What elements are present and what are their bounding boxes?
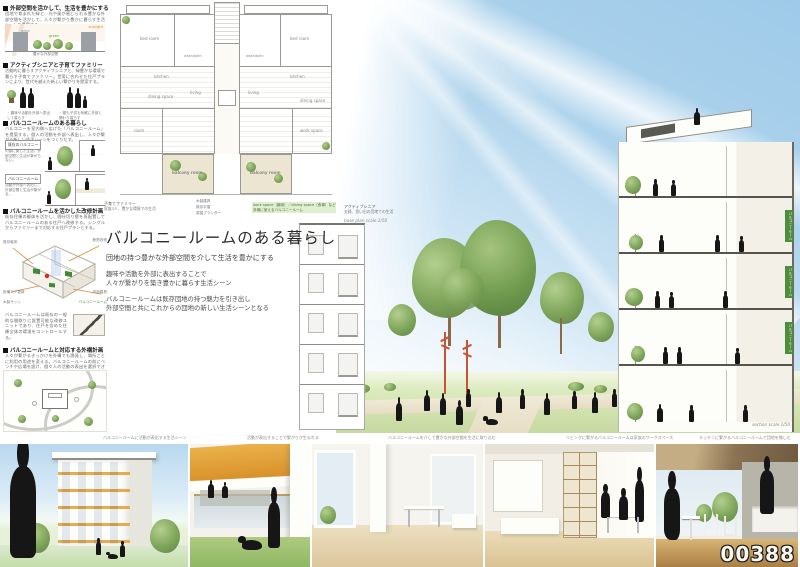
tree-blob	[55, 179, 71, 199]
plant-pot	[9, 98, 14, 103]
axon-label: 既存躯体	[3, 240, 17, 245]
person-silhouette	[657, 408, 663, 422]
table-leg	[408, 509, 410, 527]
person-silhouette	[635, 480, 644, 522]
room-label: living	[248, 90, 259, 95]
photo-caption: バルコニールームを介して豊かな外部空間を生活に取り込む	[388, 435, 496, 441]
person-silhouette	[120, 545, 125, 557]
room-label: dining space	[300, 98, 325, 103]
left-text-column: 外部空間を活かして、生活を豊かにする 団地で育まれた緑と、光や風が感じられる豊か…	[3, 0, 107, 433]
person-silhouette	[760, 470, 774, 514]
person-silhouette	[612, 393, 617, 407]
section-sketch	[75, 174, 105, 205]
wall	[292, 108, 293, 154]
after-note: 活動が外部へ表出し、外部空間と生活が繋がる。	[5, 183, 41, 197]
top-balcony	[126, 5, 210, 14]
tree-trunk	[560, 318, 562, 354]
photo-caption-row: バルコニールームに活動が表出する生活シーン 活動が表出することで繋がりが生まれる…	[0, 433, 800, 444]
room-label: bed room	[140, 36, 159, 41]
axonometric-diagram: 既存躯体 断熱改修 設備コア更新 内部建具 木製サッシ バルコニールーム	[3, 234, 107, 308]
table-leg	[438, 509, 440, 527]
section-scale-label: section scale 1/50	[752, 422, 790, 427]
photo-caption: 活動が表出することで繋がりが生まれる	[247, 435, 319, 441]
foreground-person-silhouette	[10, 466, 36, 558]
person-silhouette	[85, 181, 89, 190]
plan-plant	[322, 142, 330, 150]
tree-blob	[88, 381, 96, 389]
person-silhouette	[689, 409, 694, 422]
section2-body: 活動的に暮らすアクティブシニアと、緑豊かな環境で暮らす子育てファミリー。世帯に合…	[5, 68, 105, 85]
person-silhouette	[715, 239, 720, 252]
paragraph1-line1: 趣味や活動を外部に表出することで	[106, 271, 207, 278]
person-silhouette	[20, 92, 26, 108]
square-bullet-icon	[3, 209, 8, 214]
small-tree	[388, 304, 416, 336]
tree-blob	[18, 415, 26, 423]
wall	[162, 108, 163, 154]
balcony-after-diagram: バルコニールーム 活動が外部へ表出し、外部空間と生活が繋がる。	[5, 174, 105, 206]
person-silhouette	[47, 194, 51, 204]
site-plan-diagram	[3, 370, 107, 432]
sunlight-label: sunlight	[89, 25, 103, 30]
person-silhouette	[48, 160, 52, 170]
person-silhouette	[268, 502, 280, 548]
balcony-edge	[120, 194, 332, 195]
person-silhouette	[619, 496, 628, 520]
tree-blob	[57, 146, 73, 166]
person-silhouette	[466, 393, 471, 407]
balcony-plant	[627, 403, 643, 420]
unit-floor-plan: bed room bed room wash/bath wash/bath ki…	[118, 2, 336, 198]
presentation-board: 外部空間を活かして、生活を豊かにする 団地で育まれた緑と、光や風が感じられる豊か…	[0, 0, 800, 567]
person-silhouette	[75, 93, 81, 108]
building-floor	[619, 366, 792, 422]
wind-label: wind	[21, 29, 30, 34]
balcony-opening	[338, 273, 358, 297]
person-silhouette	[67, 92, 73, 108]
person-silhouette	[572, 395, 577, 409]
photo-interior-white	[312, 444, 483, 567]
balcony-opening	[338, 393, 358, 417]
person-silhouette	[396, 403, 402, 421]
balcony-plant	[631, 346, 645, 362]
paragraph1-line2: 人々が繋がりを築き豊かに暮らす生活シーン	[106, 280, 232, 287]
elevator	[218, 90, 236, 106]
plan-green-note: work space（趣味）／dining space（食事）など多様に使えるバ…	[252, 202, 340, 213]
tree-symbol	[74, 397, 79, 402]
room-label: kitchen	[290, 74, 305, 79]
dog-silhouette	[486, 419, 498, 425]
solar-panel	[641, 123, 675, 138]
red-tree	[444, 332, 446, 394]
person-silhouette	[520, 394, 525, 409]
balcony-opening	[338, 353, 358, 377]
white-column	[370, 444, 386, 532]
wall	[240, 66, 332, 67]
room-label: wash/bath	[184, 54, 202, 58]
wall	[120, 108, 214, 109]
ground-line	[45, 171, 105, 172]
white-bench	[501, 518, 559, 534]
shelving-grid	[563, 452, 597, 538]
tree-blob	[84, 417, 93, 426]
small-tree	[588, 312, 614, 342]
dog-silhouette	[242, 540, 262, 550]
plan-leader-note: 木製建具	[196, 199, 210, 204]
room-label: room	[134, 128, 144, 133]
subtitle: 団地の持つ豊かな外部空間を介して生活を豊かにする	[106, 253, 341, 263]
seated-person-silhouette	[664, 488, 680, 540]
person-silhouette	[208, 484, 214, 498]
wall-panel	[493, 460, 543, 512]
building-footprint	[42, 389, 68, 409]
main-perspective-illustration: バルコニールーム バルコニールーム バルコニールーム	[336, 0, 800, 433]
hedge-blob	[594, 385, 607, 393]
room-label: balcony room	[172, 170, 203, 175]
building-footprint	[48, 393, 62, 398]
plant-blob	[320, 506, 336, 524]
photo-interior-shelving	[485, 444, 654, 567]
person-silhouette	[663, 351, 668, 364]
balcony-opening	[338, 235, 358, 259]
white-chair	[704, 514, 718, 536]
table-leg	[637, 517, 639, 533]
red-tree	[466, 340, 468, 396]
window-grid	[62, 462, 126, 544]
elevation-floor	[300, 385, 364, 425]
window	[308, 393, 324, 413]
axon-label: 断熱改修	[93, 238, 107, 243]
plan-plant	[274, 174, 283, 183]
photo-interior-kitchen: 00388	[656, 444, 798, 567]
person-silhouette	[496, 397, 502, 413]
partition-line	[726, 146, 727, 196]
wood-floor	[312, 525, 483, 567]
tree-blob	[65, 42, 73, 50]
tree-blob	[14, 379, 22, 387]
person-on-roof	[694, 112, 700, 125]
room-label: dining space	[148, 94, 173, 99]
rendering-photo-strip: 00388	[0, 444, 800, 567]
room-label: wash/bath	[246, 54, 264, 58]
dog-silhouette	[108, 554, 118, 559]
balcony-before-diagram: 既存のバルコニー 内部に閉じた生活。外部空間と生活が繋がらない。	[5, 140, 105, 172]
room-label: work space	[300, 128, 323, 133]
paragraph2: バルコニールームは既存団地の持つ魅力を引き出し 外部空間と共にこれからの団地の新…	[106, 295, 341, 313]
hedge-blob	[568, 382, 584, 391]
window	[308, 353, 324, 373]
plan-caption-right-sub: 夫婦、思い出の団地での生活	[344, 210, 393, 215]
plan-plant	[122, 16, 130, 24]
photo-exterior-building	[0, 444, 188, 567]
elevation-floor	[300, 345, 364, 385]
person-silhouette	[743, 409, 748, 422]
child-silhouette	[83, 99, 87, 108]
person-silhouette	[739, 240, 744, 252]
person-silhouette	[723, 295, 728, 308]
window	[308, 313, 324, 333]
square-bullet-icon	[3, 348, 8, 353]
main-title: バルコニールームのある暮らし	[106, 226, 341, 248]
section4-body: 既存住棟の躯体を活かし、間仕切り壁を再配置してバルコニールームのある住戸へ改修す…	[5, 214, 105, 231]
paragraph1: 趣味や活動を外部に表出することで 人々が繋がりを築き豊かに暮らす生活シーン	[106, 270, 341, 288]
person-silhouette	[677, 351, 682, 364]
plan-leader-note: 菜園プランター	[196, 211, 221, 216]
room-label: living	[190, 90, 201, 95]
axon-label: 木製サッシ	[3, 300, 21, 305]
tree-blob	[33, 40, 42, 49]
paragraph2-line2: 外部空間と共にこれからの団地の新しい生活シーンとなる	[106, 305, 269, 312]
person-silhouette	[601, 492, 610, 518]
photo-caption: キッチンに繋がるバルコニールームで団地を愉しむ	[699, 435, 791, 441]
room-label: kitchen	[154, 74, 169, 79]
ground-line	[45, 205, 105, 206]
person-silhouette	[222, 486, 228, 498]
balcony-plant	[629, 235, 643, 250]
axon-sketch	[3, 234, 107, 308]
partition-line	[726, 314, 727, 364]
big-tree	[440, 268, 484, 310]
photo-caption: リビングに繋がるバルコニールームは家族のワークスペース	[566, 435, 673, 441]
resident-silhouettes	[5, 88, 105, 110]
tree-blob	[150, 519, 180, 553]
diagram-caption: 豊かな外部空間	[33, 52, 58, 57]
wall	[120, 66, 214, 67]
building-floor: バルコニールーム	[619, 310, 792, 366]
title-block: バルコニールームのある暮らし 団地の持つ豊かな外部空間を介して生活を豊かにする …	[106, 226, 341, 314]
building-floor: バルコニールーム	[619, 198, 792, 254]
person-silhouette	[655, 295, 660, 308]
partition-line	[726, 202, 727, 252]
building-section-drawing: バルコニールーム バルコニールーム バルコニールーム	[618, 142, 794, 432]
square-bullet-icon	[3, 6, 8, 11]
square-bullet-icon	[3, 63, 8, 68]
white-bench	[452, 514, 476, 528]
partition-line	[726, 370, 727, 422]
floor-tag: バルコニールーム	[785, 210, 793, 242]
wall	[174, 14, 175, 66]
green-label: green	[49, 34, 59, 39]
tree-blob	[53, 39, 63, 49]
person-silhouette	[456, 406, 463, 425]
table-leg	[690, 518, 692, 540]
section4-note: バルコニールームは既存の一般的な間取りに設置可能な改修ユニットであり、住戸を含め…	[5, 312, 67, 340]
person-silhouette	[28, 93, 34, 108]
table-leg	[607, 517, 609, 533]
balcony-plant	[625, 176, 641, 194]
person-silhouette	[659, 239, 664, 252]
building-block	[13, 32, 28, 51]
axon-label: バルコニールーム	[78, 300, 107, 305]
counter	[752, 506, 798, 532]
room-label: balcony room	[250, 170, 281, 175]
balcony-opening	[338, 313, 358, 337]
plan-scale-label: base plan scale 1/50	[344, 218, 387, 223]
panel-mini-diagram	[73, 314, 105, 336]
paragraph2-line1: バルコニールームは既存団地の持つ魅力を引き出し	[106, 296, 251, 303]
white-chair	[724, 516, 737, 536]
axon-label: 内部建具	[93, 290, 107, 295]
tree-blob	[43, 42, 51, 50]
floor-tag: バルコニールーム	[785, 322, 793, 354]
plan-leader-note: 既存手摺	[196, 205, 210, 210]
room-label: bed room	[290, 36, 309, 41]
person-silhouette	[544, 398, 550, 415]
person-silhouette	[424, 395, 430, 411]
wall	[280, 14, 281, 66]
square-bullet-icon	[3, 121, 8, 126]
before-note: 内部に閉じた生活。外部空間と生活が繋がらない。	[5, 149, 41, 163]
photo-caption: バルコニールームに活動が表出する生活シーン	[103, 435, 187, 441]
tree-symbol	[32, 401, 37, 406]
person-silhouette	[653, 183, 658, 196]
floor-tag: バルコニールーム	[785, 266, 793, 298]
building-block	[81, 32, 96, 51]
mid-tree	[540, 272, 584, 324]
top-balcony	[244, 5, 328, 14]
entry-id-number: 00388	[720, 542, 795, 566]
building-side	[130, 460, 152, 546]
building-floor	[619, 142, 792, 198]
photo-balcony-closeup	[190, 444, 310, 567]
stair-core	[214, 2, 240, 44]
building-floor: バルコニールーム	[619, 254, 792, 310]
plan-caption-left-sub: 家族3人、豊かな環境での生活	[104, 207, 156, 212]
site-section-diagram: sunlight wind green 豊かな外部空間	[5, 24, 105, 56]
person-silhouette	[91, 148, 95, 156]
person-silhouette	[440, 398, 446, 415]
person-silhouette	[671, 184, 676, 196]
person-silhouette	[735, 352, 740, 364]
tree-blob	[52, 415, 59, 422]
balcony-plant	[625, 288, 643, 306]
person-silhouette	[592, 397, 598, 413]
person-silhouette	[96, 542, 101, 555]
axon-label: 設備コア更新	[3, 290, 25, 295]
hedge-blob	[384, 383, 396, 391]
person-silhouette	[669, 296, 674, 308]
wall	[240, 108, 332, 109]
roof-slab	[52, 452, 156, 460]
